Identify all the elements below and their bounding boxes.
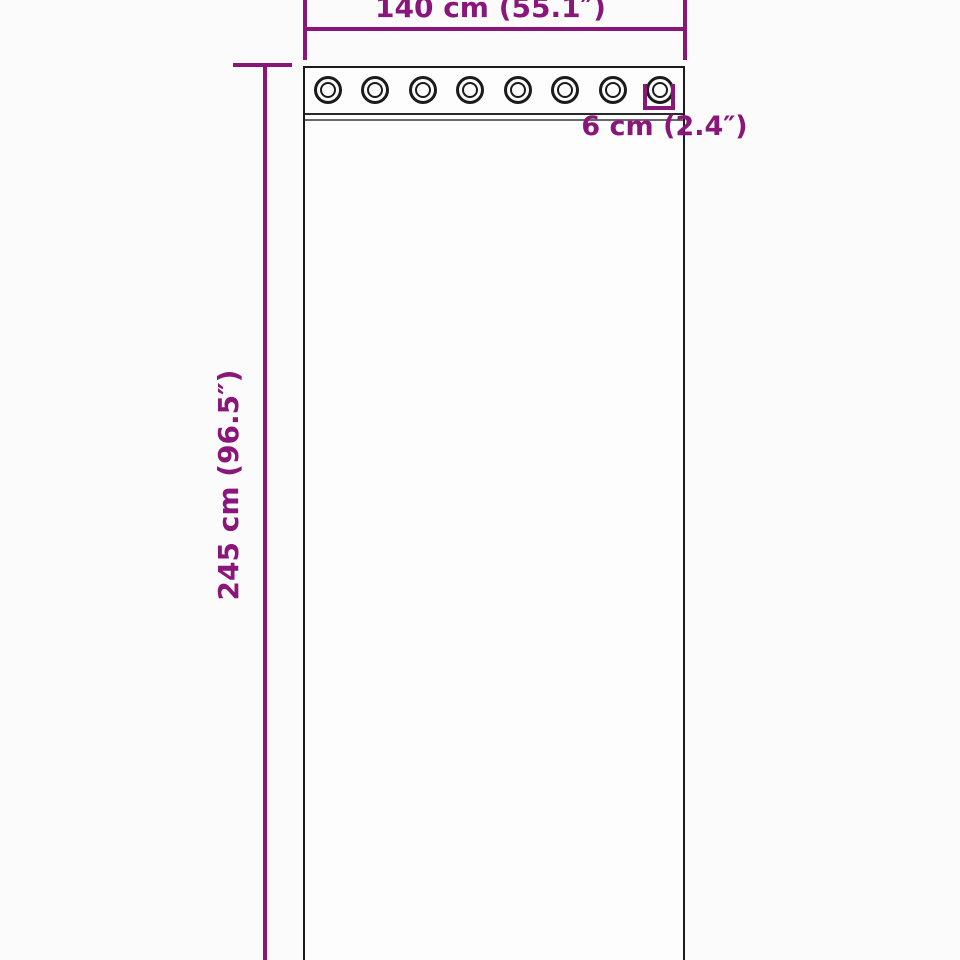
height-dimension-label: 245 cm (96.5″): [207, 365, 251, 605]
width-dimension-cap-left: [303, 0, 307, 60]
grommet-eyelet: [361, 76, 389, 104]
height-dimension-cap-top: [233, 63, 292, 67]
width-dimension-label: 140 cm (55.1″): [375, 0, 605, 23]
dimension-diagram: 140 cm (55.1″) 245 cm (96.5″) 6 cm (2.4″…: [0, 0, 960, 960]
grommet-dimension-label: 6 cm (2.4″): [572, 111, 757, 142]
grommet-eyelet: [409, 76, 437, 104]
grommet-eyelet: [599, 76, 627, 104]
width-dimension-cap-right: [683, 0, 687, 60]
grommet-eyelet: [314, 76, 342, 104]
curtain-panel: [303, 66, 685, 960]
width-dimension-line: [303, 27, 687, 31]
grommet-eyelet: [456, 76, 484, 104]
height-dimension-line: [263, 65, 267, 960]
grommet-eyelet: [551, 76, 579, 104]
grommet-bracket-bar: [643, 106, 675, 110]
grommet-eyelet: [504, 76, 532, 104]
